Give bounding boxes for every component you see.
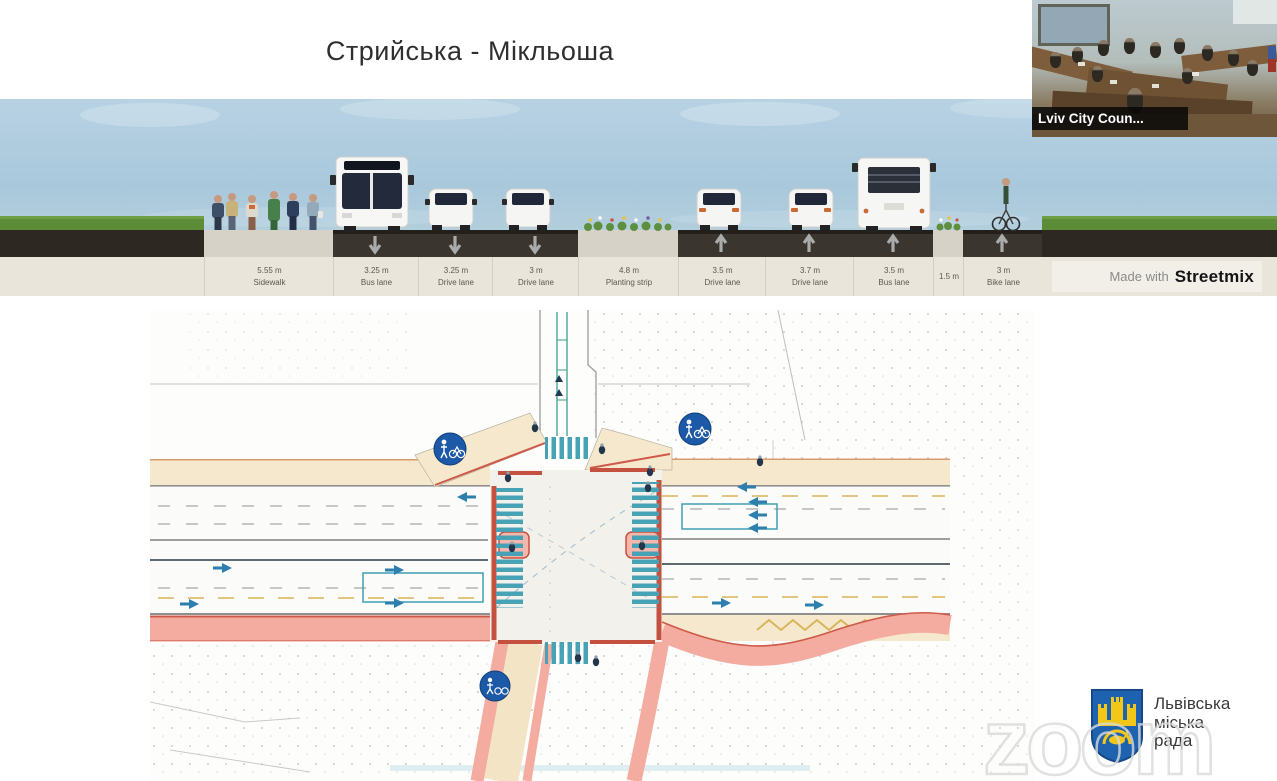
participant	[1050, 52, 1061, 68]
car-rear	[789, 189, 833, 230]
car-rear	[697, 189, 741, 230]
streetmix-logo-text: Streetmix	[1175, 267, 1254, 287]
participant	[1072, 47, 1083, 63]
participant	[1124, 38, 1135, 54]
bright-window	[1233, 0, 1277, 24]
pedestrian-bicycle-sign	[679, 413, 711, 445]
segment-label: 3 mBike lane	[963, 257, 1043, 296]
segment-label: 5.55 mSidewalk	[204, 257, 334, 296]
segment-label: 3.25 mBus lane	[333, 257, 419, 296]
pedestrian-bicycle-sign	[480, 671, 510, 701]
car-front	[425, 189, 477, 230]
chair-back	[1268, 46, 1276, 72]
participant	[1182, 68, 1193, 84]
wall-picture	[1038, 4, 1110, 46]
video-participant-thumbnail[interactable]: Lviv City Coun...	[1032, 0, 1277, 137]
segment-label: 4.8 mPlanting strip	[578, 257, 679, 296]
segment-label: 3 mDrive lane	[492, 257, 579, 296]
participant	[1247, 60, 1258, 76]
zoom-shared-screen: Стрийська - Мікльоша	[0, 0, 1277, 781]
streetmix-credit: Made with Streetmix	[1052, 261, 1262, 292]
credit-prefix: Made with	[1109, 269, 1168, 284]
participant	[1174, 38, 1185, 54]
page-title: Стрийська - Мікльоша	[0, 36, 940, 67]
segment-label: 1.5 m	[933, 257, 964, 296]
ground	[0, 216, 1277, 257]
bus-rear	[852, 158, 936, 232]
participant	[1228, 50, 1239, 66]
segment-label: 3.5 mBus lane	[853, 257, 934, 296]
participant	[1092, 66, 1103, 82]
streetmix-label-strip: 5.55 mSidewalk 3.25 mBus lane 3.25 mDriv…	[0, 257, 1277, 296]
segment-label: 3.7 mDrive lane	[765, 257, 854, 296]
pedestrian-bicycle-sign	[434, 433, 466, 465]
segment-label: 3.25 mDrive lane	[418, 257, 493, 296]
car-front	[502, 189, 554, 230]
crosswalk-east	[632, 482, 659, 608]
participant	[1098, 40, 1109, 56]
participant	[1202, 45, 1213, 61]
participant	[1150, 42, 1161, 58]
planting-strip-flowers	[584, 216, 672, 231]
crosswalk-north	[545, 437, 590, 459]
participant-name-label: Lviv City Coun...	[1032, 107, 1188, 130]
zoom-watermark: zoom	[983, 688, 1212, 781]
segment-label: 3.5 mDrive lane	[678, 257, 766, 296]
crosswalk-south	[545, 642, 590, 664]
bus-front	[330, 157, 414, 232]
intersection-plan-map	[150, 310, 1035, 781]
